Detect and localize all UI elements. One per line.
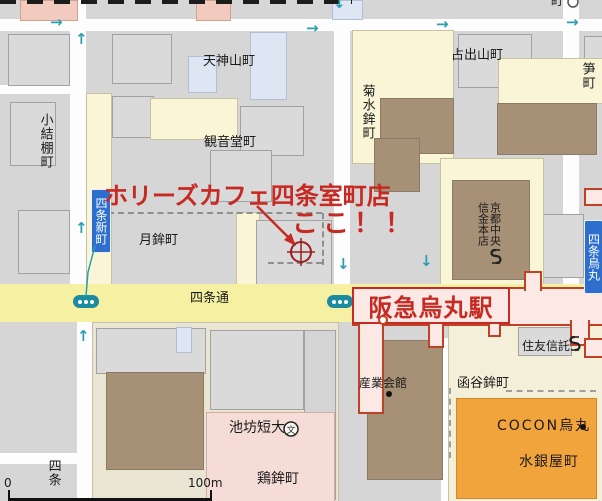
station-outline-notch-up [524,271,542,291]
street-shinmachi-south [77,322,92,501]
label-shinkin-left-col: 信金本店 [477,202,489,246]
scale-bar [8,490,212,501]
street-ayanokoji [0,453,77,464]
label-tenjinyamacho: 天神山町 [203,55,255,69]
brown-building [497,103,597,155]
label-kikusuihokocho: 菊水鉾町 [360,84,374,140]
boundary-dash [506,390,596,392]
label-shijo-dori: 四条通 [186,292,233,306]
station-name-box: 阪急烏丸駅 [352,287,510,324]
label-ikenobo-tandai: 池坊短大 [229,421,285,436]
oneway-arrow-up: ↑ [75,30,88,48]
map-canvas[interactable]: 阪急烏丸駅 → ↑ ↑ ↑ → → → ↓ ↓ ↓ 天神山町 占出山町 観音堂町… [0,0,602,501]
oneway-arrow-right: → [306,19,319,37]
scale-100m-label: 100m [188,476,223,490]
station-outline-east-piece [584,188,602,206]
cream-block [150,98,238,140]
lightblue-building [176,327,192,353]
boundary-dash [449,388,451,458]
label-uradeyamacho: 占出山町 [451,49,503,63]
oneway-arrow-down: ↓ [420,252,433,270]
oneway-arrow-up: ↑ [75,219,88,237]
street-muromachi-north [334,0,350,285]
hankyu-rail-dashes [0,0,352,4]
boundary-dash [268,262,322,264]
oneway-arrow-up: ↑ [77,327,90,345]
building-block [210,330,304,410]
transit-stop-marker [73,295,99,308]
sangyo-kaikan-dot [386,391,392,397]
here-annotation: ここ！！ [292,203,416,240]
label-sumitomo-trust: 住友信託 [522,340,570,353]
oneway-arrow-right: → [436,15,449,33]
label-cocon-karasuma: COCON烏丸 [497,419,591,434]
label-tsukihokocho: 月鉾町 [139,234,178,248]
building-block [18,210,70,274]
label-niwatorihokocho: 鶏鉾町 [257,472,299,487]
oneway-arrow-down: ↓ [337,255,350,273]
station-name-label: 阪急烏丸駅 [369,288,494,323]
oneway-arrow-down: ↓ [333,0,346,12]
oneway-arrow-right: → [566,13,579,31]
building-block [538,214,584,278]
brown-building-ikenobo [106,372,204,470]
label-kankobokocho: 函谷鉾町 [457,377,509,391]
sign-shijo-karasuma: 四条烏丸 [584,220,602,294]
label-shijo-partial: 四条 [46,459,60,487]
label-top-edge-partial: 町 [551,0,563,8]
label-takecho: 笋町 [580,62,594,90]
label-shinkin-right-col: 京都中央 [489,202,501,246]
cocon-dot [580,424,586,430]
label-sangyo-kaikan: 産業会館 [359,377,407,390]
label-suiginyacho: 水銀屋町 [519,455,579,470]
station-outline-arm-right-foot [584,338,602,358]
station-outline-notch-1 [428,320,444,348]
transit-stop-marker [327,295,353,308]
scale-zero-label: 0 [4,476,12,490]
street-lane-left [0,85,72,94]
oneway-arrow-right: → [50,13,63,31]
street-nishikikoji [0,19,602,31]
label-kannondocho: 観音堂町 [204,136,256,150]
label-komusubitanacho: 小結棚町 [38,113,52,169]
lightblue-building [250,32,287,100]
building-block [8,34,70,86]
orange-building-cocon [456,398,597,499]
station-outline-arm-left [358,320,384,414]
boundary-dash [108,212,322,214]
building-block [112,34,172,84]
building-block [112,96,154,138]
